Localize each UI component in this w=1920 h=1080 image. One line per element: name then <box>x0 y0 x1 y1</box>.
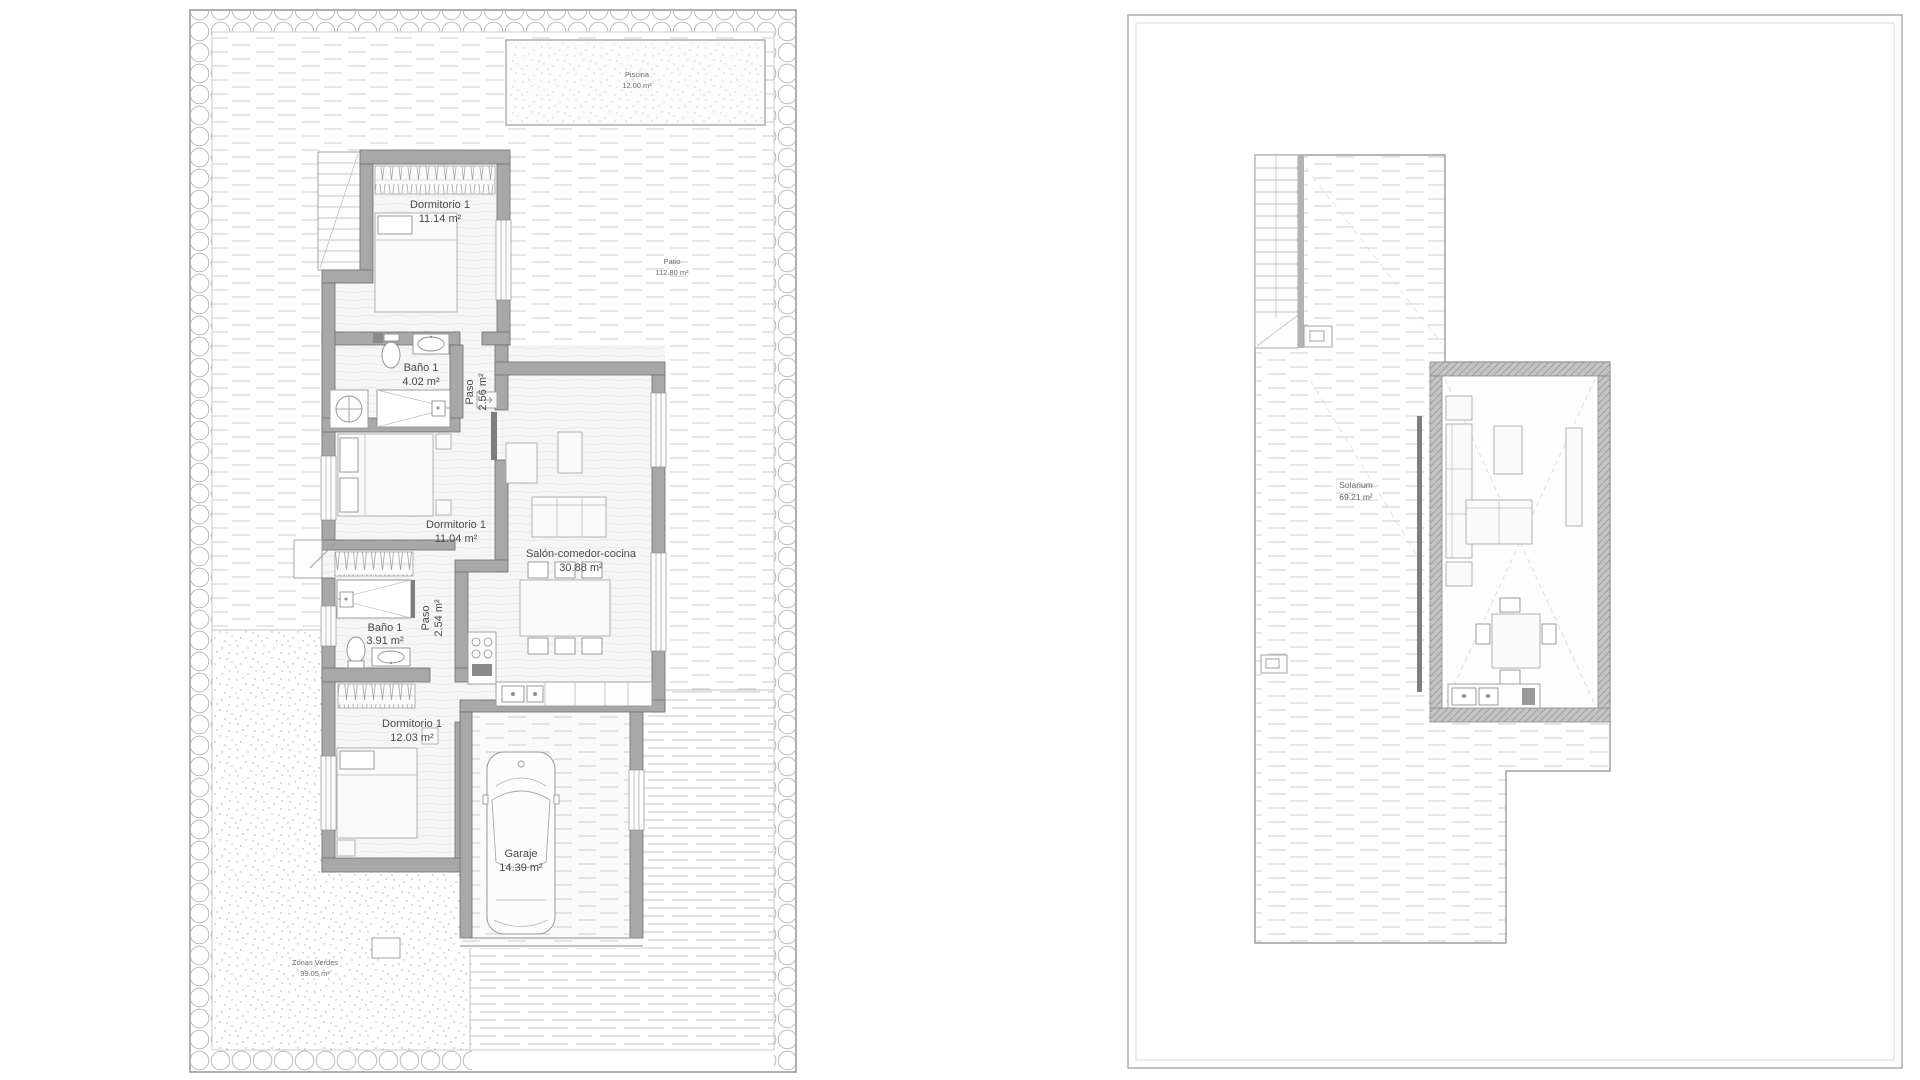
shower <box>337 580 411 618</box>
summer-kitchen <box>1448 684 1540 708</box>
room-label-dormitorio-top: Dormitorio 1 <box>410 199 470 211</box>
room-label-salon: Salón-comedor-cocina <box>526 548 637 560</box>
room-area-piscina: 12.00 m² <box>622 81 652 90</box>
double-sink-icon <box>502 686 543 702</box>
room-area-bano-low: 3.91 m² <box>366 635 404 647</box>
shower-glass <box>411 580 415 618</box>
room-area-dormitorio-mid: 11.04 m² <box>435 533 478 545</box>
window <box>321 756 336 830</box>
room-label-bano-top: Baño 1 <box>404 362 439 374</box>
room-label-bano-low: Baño 1 <box>368 622 403 634</box>
svg-text:2.54 m²: 2.54 m² <box>433 599 445 637</box>
wardrobe <box>335 552 413 576</box>
stair-wall <box>1298 155 1304 348</box>
bed <box>375 213 457 312</box>
sink-icon <box>413 334 449 354</box>
window <box>321 606 336 646</box>
room-label-zonas-verdes: Zonas Verdes <box>292 958 339 967</box>
wardrobe <box>338 684 415 708</box>
exterior-staircase <box>318 152 360 270</box>
roof-hatch <box>1304 326 1332 347</box>
window <box>629 770 644 830</box>
rear-stoop <box>372 938 400 958</box>
room-area-salon: 30.88 m² <box>559 562 603 574</box>
solarium-room <box>1430 362 1610 722</box>
room-area-dormitorio-top: 11.14 m² <box>419 213 462 225</box>
duct <box>373 333 383 343</box>
svg-text:Paso: Paso <box>420 605 432 630</box>
room-label-dormitorio-low: Dormitorio 1 <box>382 718 442 730</box>
terrace-paving <box>643 690 774 1050</box>
plan-drawing: Piscina 12.00 m² Patio 112.80 m² <box>0 0 1920 1080</box>
room-label-solarium: Solarium <box>1339 480 1373 490</box>
side-table <box>558 432 582 473</box>
wardrobe <box>375 166 495 194</box>
window <box>496 220 511 300</box>
floor-plan-sheet: Piscina 12.00 m² Patio 112.80 m² <box>0 0 1920 1080</box>
room-area-patio: 112.80 m² <box>655 268 689 277</box>
room-label-dormitorio-mid: Dormitorio 1 <box>426 519 486 531</box>
sink-icon <box>372 648 410 666</box>
patio-paving-right <box>650 630 774 690</box>
svg-text:Paso: Paso <box>464 379 476 404</box>
room-label-piscina: Piscina <box>625 70 650 79</box>
room-area-bano-top: 4.02 m² <box>402 376 440 388</box>
site-plan-ground-floor: Piscina 12.00 m² Patio 112.80 m² <box>190 10 796 1072</box>
armchair <box>506 443 537 483</box>
floor-plan-solarium: Solarium 69.21 m² <box>1128 15 1902 1068</box>
car-top-view-icon <box>483 752 559 934</box>
toilet-icon <box>347 637 365 668</box>
room-area-dormitorio-low: 12.03 m² <box>390 732 434 744</box>
pool: Piscina 12.00 m² <box>506 40 765 125</box>
shower <box>377 390 450 427</box>
entry-stoop <box>294 540 322 578</box>
bbq-unit <box>1261 655 1287 673</box>
svg-text:2.56 m²: 2.56 m² <box>477 373 489 411</box>
sliding-door <box>491 412 497 460</box>
parapet-wall <box>1417 416 1422 692</box>
room-area-garaje: 14.39 m² <box>499 862 543 874</box>
toilet-icon <box>382 334 400 368</box>
room-label-garaje: Garaje <box>504 848 537 860</box>
window <box>651 393 666 467</box>
outdoor-unit-icon <box>330 390 368 428</box>
staircase <box>1255 155 1304 348</box>
driveway-paving <box>470 945 643 1050</box>
window <box>321 456 336 520</box>
room-area-zonas-verdes: 99.05 m² <box>300 969 330 978</box>
dining-table-set <box>520 562 610 654</box>
window <box>651 553 666 651</box>
sofa <box>532 497 606 537</box>
room-label-patio: Patio <box>663 257 680 266</box>
room-area-solarium: 69.21 m² <box>1339 492 1373 502</box>
